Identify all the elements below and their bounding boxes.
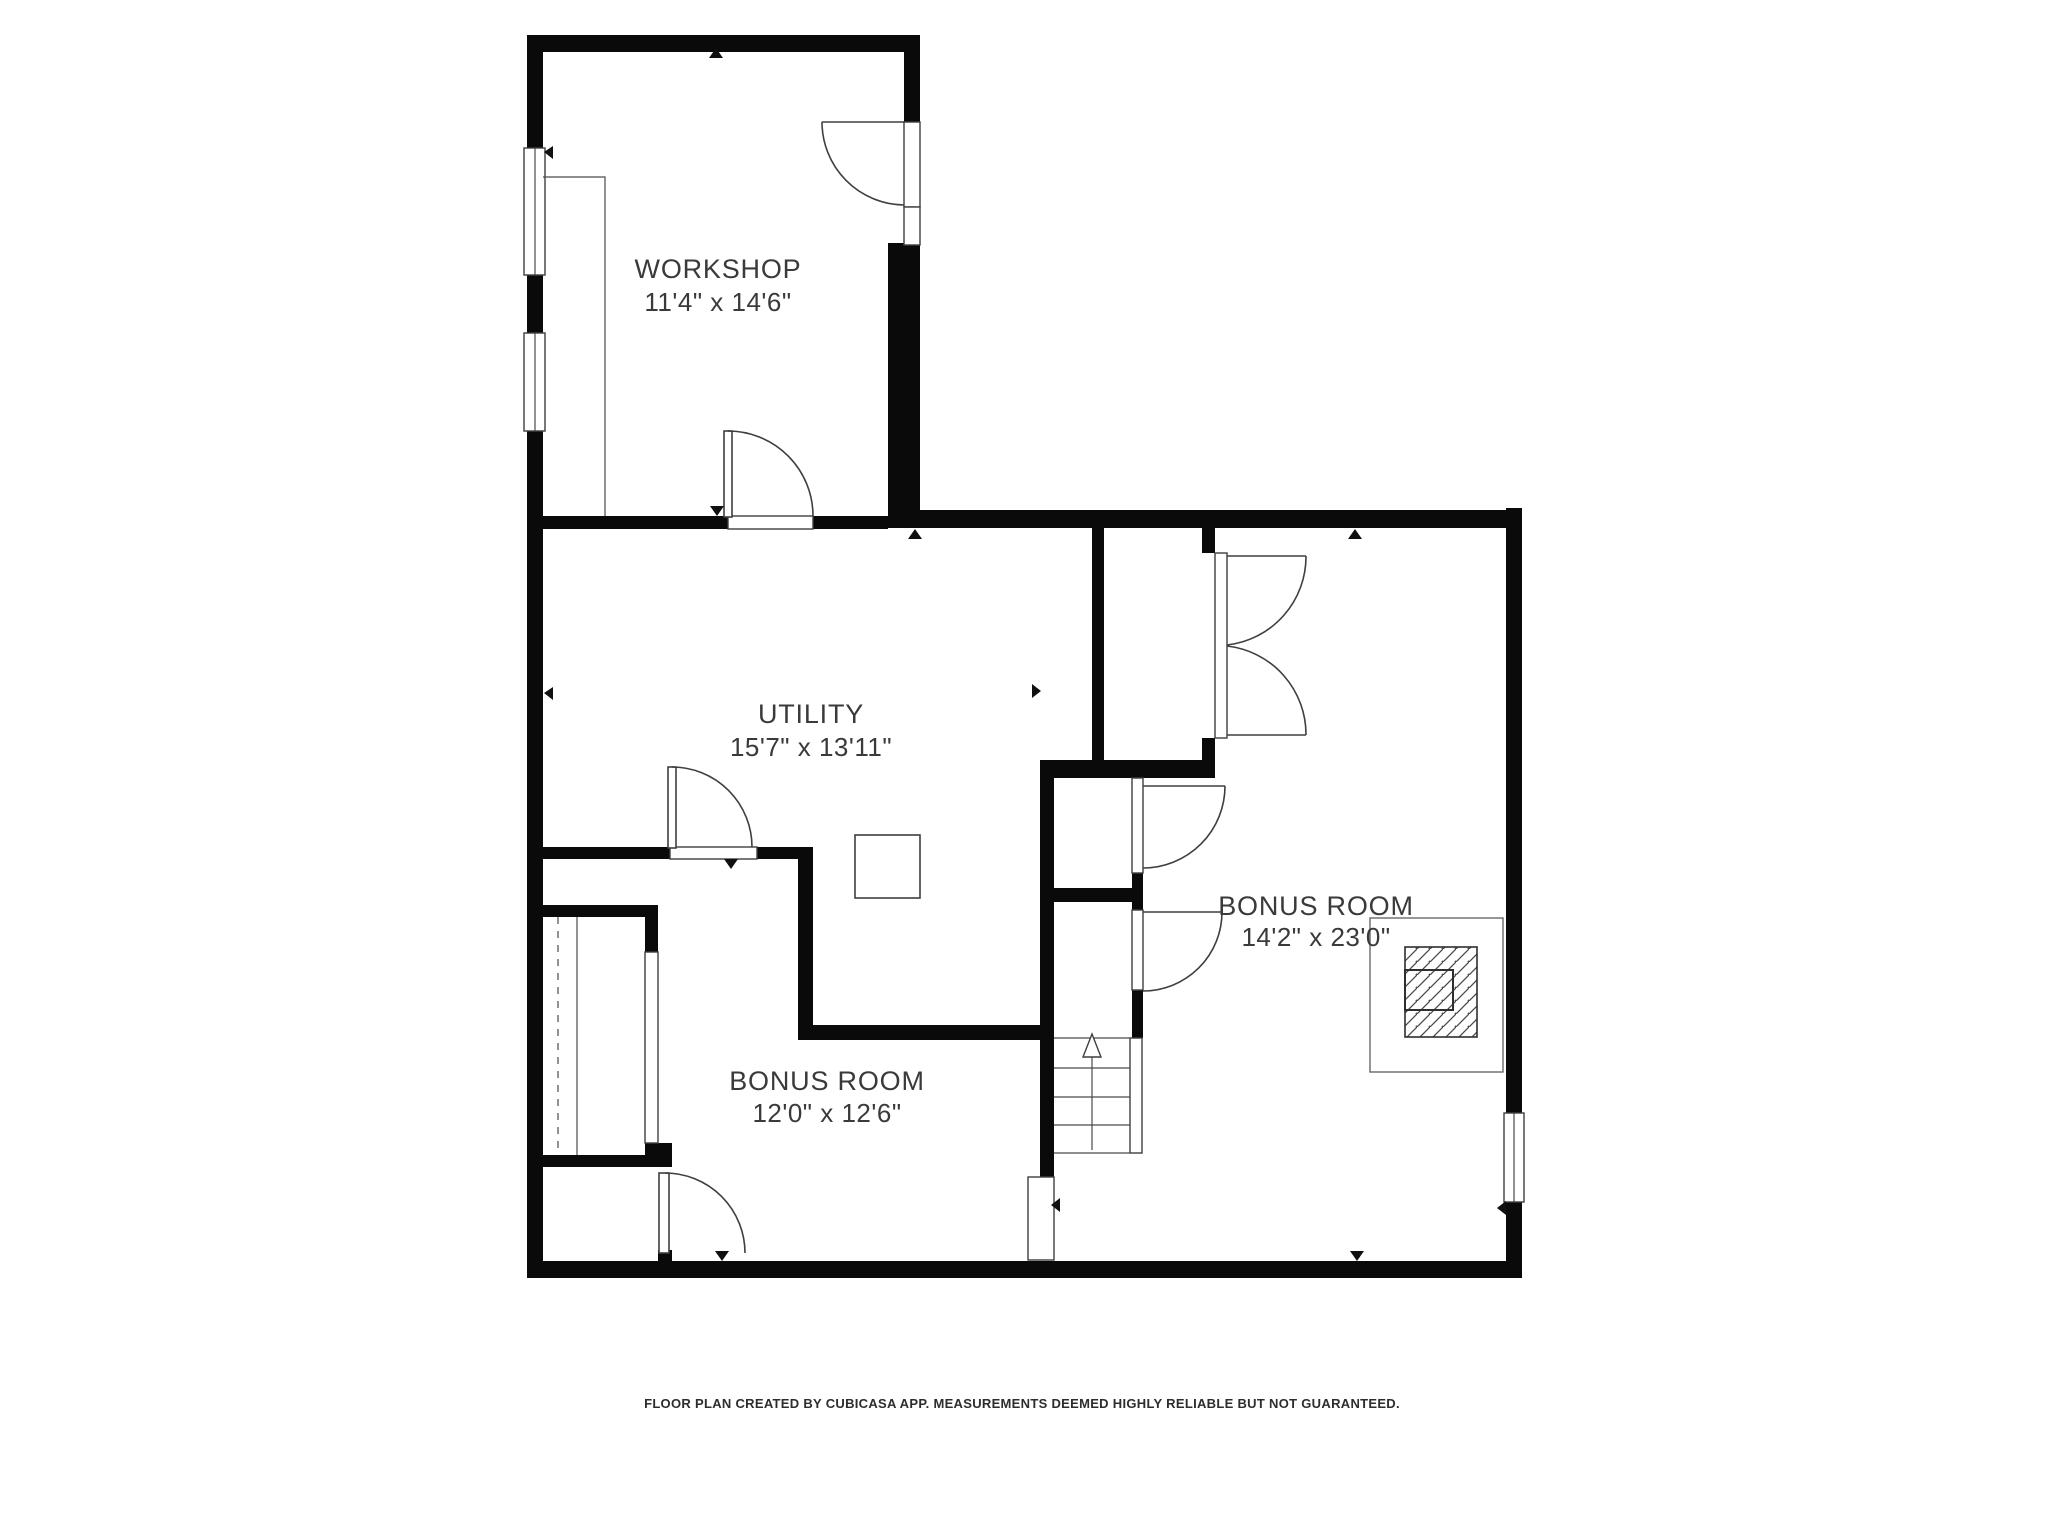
- opening-stair-hall: [1028, 1177, 1054, 1260]
- workshop-partition-line: [543, 177, 605, 516]
- opening-closet: [645, 952, 658, 1143]
- door-hall-upper: [1132, 778, 1225, 873]
- direction-markers: [544, 48, 1506, 1261]
- window-workshop-lower: [524, 333, 545, 431]
- room-labels: WORKSHOP 11'4" x 14'6" UTILITY 15'7" x 1…: [635, 254, 1414, 1128]
- room-label-workshop: WORKSHOP: [635, 254, 802, 284]
- room-label-utility: UTILITY: [758, 699, 864, 729]
- room-label-bonus-right: BONUS ROOM: [1218, 891, 1414, 921]
- door-lower-left: [659, 1173, 745, 1253]
- door-hall-lower: [1132, 910, 1222, 991]
- closet-rod-lines: [558, 917, 577, 1155]
- staircase: [1054, 1034, 1142, 1153]
- floor-plan-page: WORKSHOP 11'4" x 14'6" UTILITY 15'7" x 1…: [0, 0, 2048, 1536]
- interior-walls: [527, 516, 1215, 1263]
- door-double-closet: [1215, 553, 1306, 738]
- room-dims-bonus-lower: 12'0" x 12'6": [752, 1098, 901, 1128]
- footer-disclaimer: FLOOR PLAN CREATED BY CUBICASA APP. MEAS…: [644, 1396, 1400, 1411]
- door-utility-lower: [668, 767, 757, 859]
- window-workshop-upper: [524, 148, 545, 275]
- room-dims-bonus-right: 14'2" x 23'0": [1241, 922, 1390, 952]
- water-heater-icon: [855, 835, 920, 898]
- door-workshop-right: [822, 122, 920, 245]
- floor-plan-drawing: WORKSHOP 11'4" x 14'6" UTILITY 15'7" x 1…: [0, 0, 2048, 1536]
- room-dims-utility: 15'7" x 13'11": [730, 732, 892, 762]
- exterior-walls: [527, 35, 1522, 1278]
- door-workshop-utility: [724, 431, 813, 529]
- stairs-up-arrow-icon: [1083, 1034, 1101, 1150]
- window-bonus-room-right: [1504, 1113, 1524, 1202]
- room-dims-workshop: 11'4" x 14'6": [644, 287, 791, 317]
- room-label-bonus-lower: BONUS ROOM: [729, 1066, 925, 1096]
